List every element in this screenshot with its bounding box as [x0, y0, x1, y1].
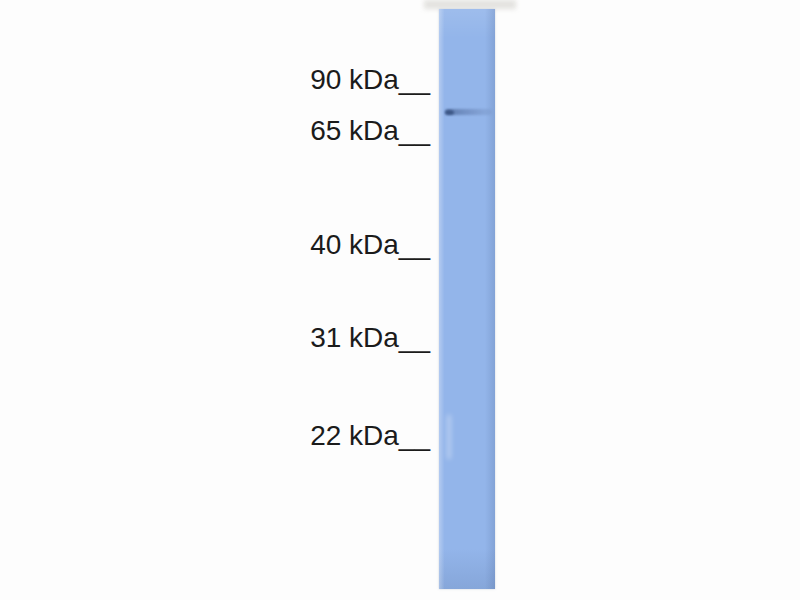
blot-lane — [439, 9, 495, 589]
marker-label-65kda: 65 kDa__ — [310, 117, 430, 145]
lane-texture — [439, 9, 495, 589]
marker-label-22kda: 22 kDa__ — [310, 422, 430, 450]
protein-band-dot — [445, 110, 454, 115]
marker-label-90kda: 90 kDa__ — [310, 66, 430, 94]
background-smudge — [424, 0, 516, 9]
western-blot-figure: 90 kDa__ 65 kDa__ 40 kDa__ 31 kDa__ 22 k… — [0, 0, 800, 600]
marker-label-40kda: 40 kDa__ — [310, 231, 430, 259]
lane-streak — [447, 415, 451, 459]
molecular-weight-markers: 90 kDa__ 65 kDa__ 40 kDa__ 31 kDa__ 22 k… — [0, 0, 431, 600]
marker-label-31kda: 31 kDa__ — [310, 324, 430, 352]
